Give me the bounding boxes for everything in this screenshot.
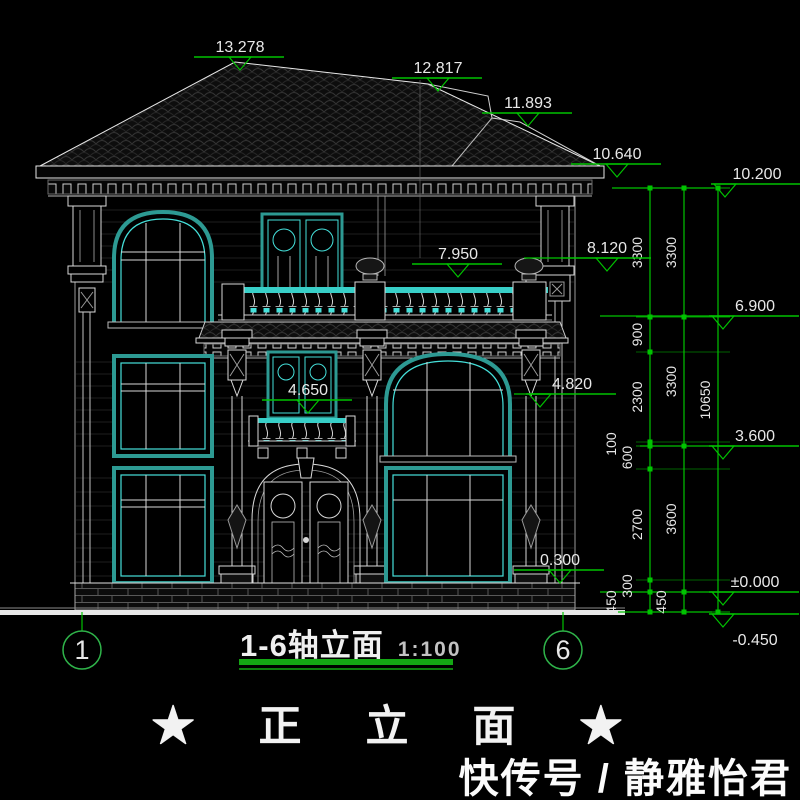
second-floor-arched-window-left (108, 212, 220, 328)
ground-floor-window-right (386, 468, 510, 583)
elevation-value: 12.817 (414, 60, 463, 77)
elevation-value: 10.200 (733, 166, 782, 183)
dimension-value: 10650 (697, 380, 713, 419)
dimension-value: 450 (603, 590, 619, 614)
house-elevation (0, 62, 625, 615)
dimension-value: 3600 (663, 503, 679, 534)
elevation-value: 0.300 (540, 552, 580, 569)
elevation-drawing-canvas: 3300900230010060027003004503300330036004… (0, 0, 800, 800)
elevation-value: 11.893 (504, 95, 552, 112)
elevation-marker: 10.200 (711, 166, 800, 197)
cad-elevation-screenshot: 3300900230010060027003004503300330036004… (0, 0, 800, 800)
dimension-value: 2300 (629, 381, 645, 412)
watermark-text: 快传号 / 静雅怡君 (459, 746, 792, 800)
title-underline-thick (239, 659, 453, 665)
title-underline-thin (239, 668, 453, 670)
ground-floor-window-left (114, 468, 212, 583)
axis-bubble-1: 1 (63, 631, 101, 669)
middle-floor-window-left (114, 356, 212, 456)
elevation-value: 10.640 (593, 146, 642, 163)
middle-floor-arched-window-right (380, 354, 516, 462)
caption-front-elevation: ★ 正 立 面 ★ (0, 692, 800, 754)
elevation-value: 13.278 (216, 39, 265, 56)
axis-range-title: 1-6轴立面 (240, 628, 384, 663)
axis-bubble-6: 6 (544, 631, 582, 669)
dimension-value: 450 (653, 590, 669, 614)
elevation-marker: 7.950 (412, 246, 502, 277)
dimension-value: 3300 (663, 237, 679, 268)
drawing-scale: 1:100 (398, 638, 462, 661)
stone-base (70, 583, 580, 611)
small-balcony-balustrade (248, 416, 356, 458)
dimension-value: 2700 (629, 509, 645, 540)
elevation-value: 4.820 (552, 376, 592, 393)
elevation-marker: 3.600 (709, 428, 799, 459)
elevation-marker: 6.900 (709, 298, 799, 329)
elevation-marker: 4.820 (526, 376, 616, 407)
dimension-value: 3300 (663, 366, 679, 397)
elevation-marker: ±0.000 (709, 574, 799, 605)
elevation-value: 6.900 (735, 298, 775, 315)
elevation-marker: -0.450 (709, 614, 799, 649)
elevation-value: 4.650 (288, 382, 328, 399)
axis-number: 1 (74, 635, 89, 665)
porch-column (219, 330, 255, 592)
elevation-value: 8.120 (587, 240, 627, 257)
eave-cornice (36, 166, 604, 196)
elevation-value: -0.450 (732, 632, 777, 649)
elevation-value: ±0.000 (731, 574, 780, 591)
dimension-value: 3300 (629, 237, 645, 268)
dimension-value: 600 (619, 446, 635, 470)
axis-number: 6 (555, 635, 570, 665)
dimension-value: 300 (619, 574, 635, 598)
dimension-value: 100 (603, 432, 619, 456)
hipped-roof (40, 62, 600, 166)
elevation-value: 7.950 (438, 246, 478, 263)
dimension-value: 900 (629, 323, 645, 347)
elevation-value: 3.600 (735, 428, 775, 445)
